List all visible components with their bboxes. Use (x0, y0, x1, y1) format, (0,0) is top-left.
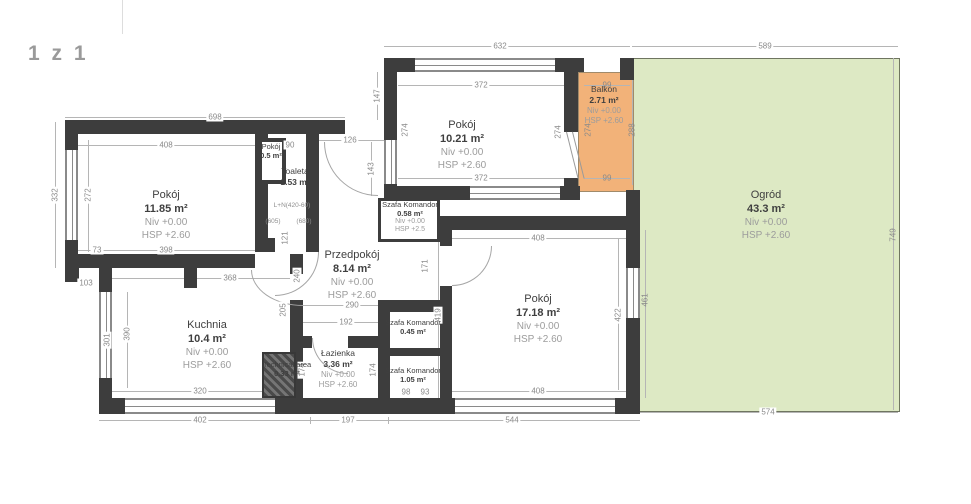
room-label-szafa2: Szafa Komandor 0.45 m² (385, 318, 441, 336)
dim-label: 332 (51, 186, 60, 203)
dim-label: 171 (421, 257, 430, 274)
dim-label: 192 (337, 318, 354, 327)
dimension-line (65, 117, 345, 118)
room-hsp: HSP +2.60 (183, 359, 231, 372)
wall (378, 300, 440, 312)
room-name: Szafa Komandor (382, 200, 438, 209)
wall (303, 336, 312, 348)
dim-label: 368 (221, 274, 238, 283)
wall (255, 238, 275, 252)
room-niv: Niv +0.00 (742, 216, 790, 229)
dim-label: 390 (123, 325, 132, 342)
dim-label: 301 (103, 331, 112, 348)
room-name: Szafa Komandor (385, 318, 441, 327)
dim-label: 402 (191, 416, 208, 425)
wall (564, 58, 578, 132)
dim-label: 274 (401, 121, 410, 138)
room-label-pokoj-maly: Pokój 0.5 m² (260, 142, 282, 160)
dim-label: 99 (601, 174, 614, 183)
room-area: 3.36 m² (319, 359, 358, 370)
room-hsp: HSP +2.60 (324, 289, 379, 302)
dim-label: 422 (614, 306, 623, 323)
room-label-ogrod: Ogród 43.3 m² Niv +0.00 HSP +2.60 (742, 188, 790, 242)
room-name: Balkon (585, 84, 624, 95)
room-label-przedpokoj: Przedpokój 8.14 m² Niv +0.00 HSP +2.60 (324, 248, 379, 302)
room-name: Toaleta (280, 166, 309, 177)
wall (440, 216, 640, 230)
room-hsp: HSP +2.60 (514, 333, 562, 346)
room-label-pokoj3: Pokój 17.18 m² Niv +0.00 HSP +2.60 (514, 292, 562, 346)
room-area: 10.4 m² (183, 332, 231, 346)
dim-label: 174 (369, 361, 378, 378)
balcony-door-leaf (566, 132, 579, 179)
wall (620, 58, 634, 80)
room-niv: Niv +0.00 (319, 370, 358, 380)
dim-label: 121 (281, 229, 290, 246)
room-hsp: HSP +2.60 (438, 159, 486, 172)
dim-label: 461 (641, 291, 650, 308)
room-niv: Niv +0.00 (438, 146, 486, 159)
room-area: 0.45 m² (385, 327, 441, 336)
room-name: Łazienka (319, 348, 358, 359)
dim-label: 274 (554, 123, 563, 140)
dim-label: 93 (419, 388, 432, 397)
dimension-line (645, 230, 646, 398)
room-hsp: HSP +2.60 (742, 229, 790, 242)
room-hsp: HSP +2.60 (142, 229, 190, 242)
dim-label: 408 (529, 387, 546, 396)
room-niv: Niv +0.00 (382, 218, 438, 226)
room-niv: Niv +0.00 (585, 106, 624, 116)
room-area: 0.58 m² (382, 209, 438, 218)
dimension-line (99, 420, 640, 421)
dim-label: 98 (400, 388, 413, 397)
room-label-technical: Technical area 0.33 m² (263, 360, 311, 378)
room-area: 2.71 m² (585, 95, 624, 106)
dim-label: 126 (341, 136, 358, 145)
dim-label: 288 (628, 121, 637, 138)
room-niv: Niv +0.00 (514, 320, 562, 333)
room-niv: Niv +0.00 (183, 346, 231, 359)
room-area: 8.14 m² (324, 262, 379, 276)
page-divider-line (122, 0, 123, 34)
room-label-szafa3: Szafa Komandor 1.05 m² (385, 366, 441, 384)
room-label-pokoj2: Pokój 10.21 m² Niv +0.00 HSP +2.60 (438, 118, 486, 172)
window (65, 150, 78, 240)
wall (390, 348, 440, 356)
dim-label: 544 (503, 416, 520, 425)
dim-label: 90 (284, 141, 297, 150)
room-label-balkon: Balkon 2.71 m² Niv +0.00 HSP +2.60 (585, 84, 624, 126)
window (125, 398, 275, 414)
room-niv: Niv +0.00 (324, 276, 379, 289)
room-label-toaleta: Toaleta 1.53 m² (280, 166, 309, 188)
dim-label: 147 (373, 87, 382, 104)
annotation: L+N(420-60) (274, 202, 311, 209)
dim-label: 408 (157, 141, 174, 150)
page-counter: 1 z 1 (28, 42, 89, 66)
wall (440, 216, 452, 246)
room-label-pokoj1: Pokój 11.85 m² Niv +0.00 HSP +2.60 (142, 188, 190, 242)
room-area: 43.3 m² (742, 202, 790, 216)
dimension-tick (310, 417, 311, 424)
annotation: (680) (296, 218, 311, 225)
room-name: Pokój (142, 188, 190, 202)
room-name: Przedpokój (324, 248, 379, 262)
room-area: 0.5 m² (260, 151, 282, 160)
dim-label: 372 (472, 174, 489, 183)
dim-label: 143 (367, 160, 376, 177)
window (415, 58, 555, 72)
window (384, 140, 397, 184)
room-area: 1.05 m² (385, 375, 441, 384)
room-label-szafa1: Szafa Komandor 0.58 m² Niv +0.00 HSP +2.… (382, 200, 438, 234)
dim-label: 103 (77, 279, 94, 288)
window (470, 186, 560, 200)
room-area: 11.85 m² (142, 202, 190, 216)
dim-label: 240 (293, 267, 302, 284)
room-name: Pokój (438, 118, 486, 132)
wall (184, 254, 197, 288)
dim-label: 698 (206, 113, 223, 122)
dim-label: 632 (491, 42, 508, 51)
dim-label: 73 (91, 246, 104, 255)
dim-label: 197 (339, 416, 356, 425)
room-name: Technical area (263, 360, 311, 369)
room-name: Pokój (514, 292, 562, 306)
room-hsp: HSP +2.60 (585, 116, 624, 126)
dim-label: 749 (889, 226, 898, 243)
window (626, 268, 640, 318)
room-label-lazienka: Łazienka 3.36 m² Niv +0.00 HSP +2.60 (319, 348, 358, 390)
room-name: Kuchnia (183, 318, 231, 332)
dim-label: 372 (472, 81, 489, 90)
dim-label: 320 (191, 387, 208, 396)
dim-label: 398 (157, 246, 174, 255)
room-hsp: HSP +2.5 (382, 226, 438, 234)
window (455, 398, 615, 414)
dimension-tick (388, 417, 389, 424)
room-name: Pokój (260, 142, 282, 151)
dim-label: 205 (279, 301, 288, 318)
floor-plan: 1 z 1 (0, 0, 971, 504)
room-niv: Niv +0.00 (142, 216, 190, 229)
room-hsp: HSP +2.60 (319, 380, 358, 390)
room-label-kuchnia: Kuchnia 10.4 m² Niv +0.00 HSP +2.60 (183, 318, 231, 372)
wall (440, 286, 452, 414)
wall (65, 254, 255, 268)
dim-label: 574 (759, 408, 776, 417)
door-arc (452, 246, 492, 286)
dim-label: 589 (756, 42, 773, 51)
annotation: (605) (265, 218, 280, 225)
room-name: Szafa Komandor (385, 366, 441, 375)
room-name: Ogród (742, 188, 790, 202)
dim-label: 408 (529, 234, 546, 243)
dim-label: 272 (84, 186, 93, 203)
wall (65, 120, 345, 134)
room-area: 17.18 m² (514, 306, 562, 320)
room-area: 10.21 m² (438, 132, 486, 146)
room-area: 0.33 m² (263, 369, 311, 378)
wall (306, 134, 319, 252)
wall (626, 318, 640, 414)
room-area: 1.53 m² (280, 177, 309, 188)
